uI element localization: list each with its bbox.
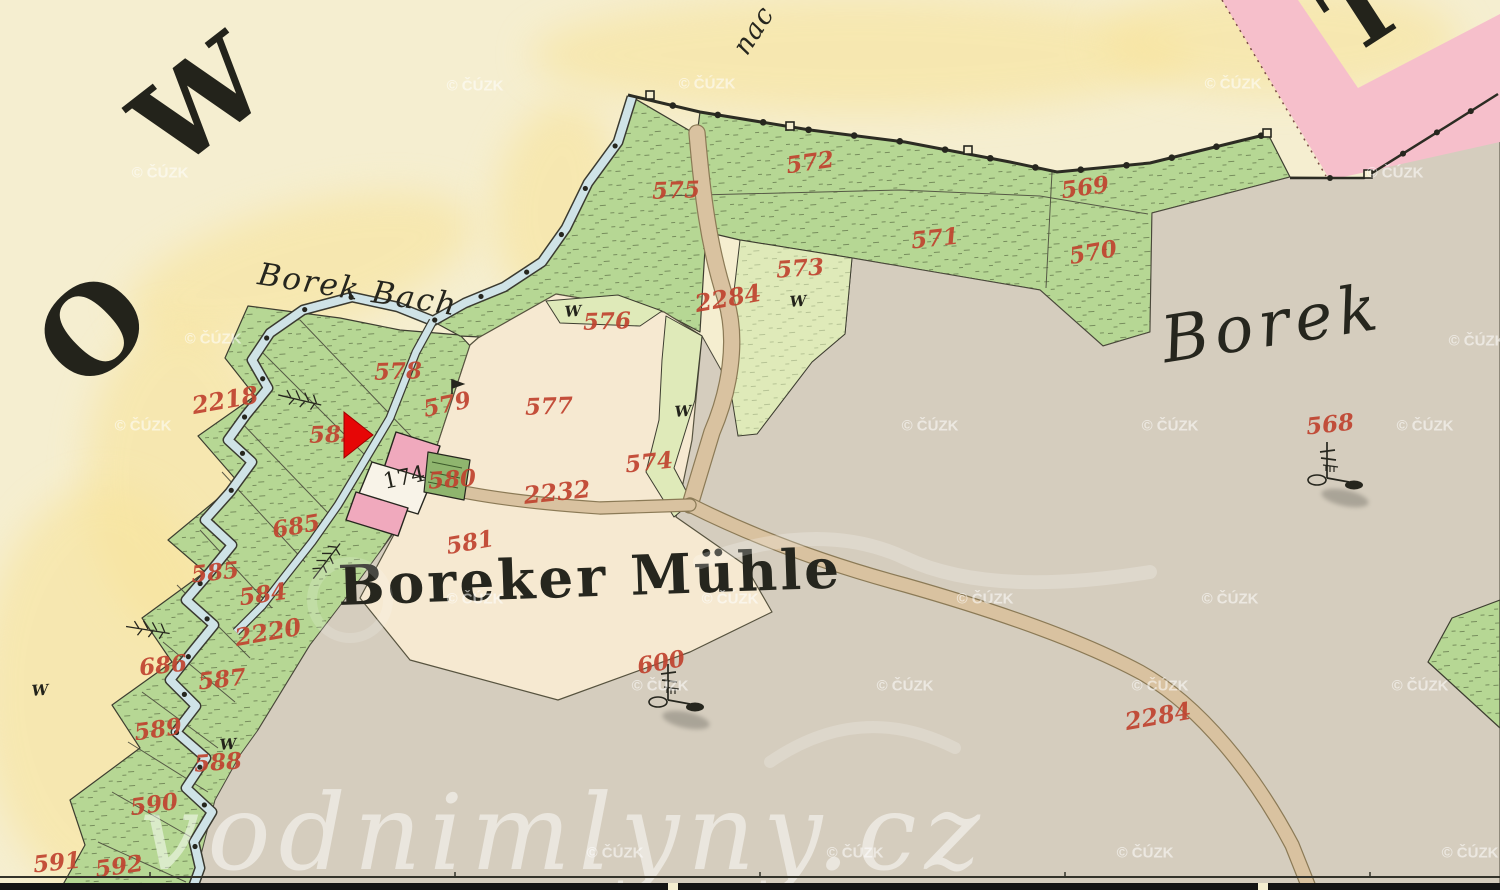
map-viewer: OWTBorek BachnacBoreker MühleBorek174221…: [0, 0, 1500, 890]
cuzk-watermark: © ČÚZK: [1132, 676, 1189, 694]
cuzk-watermark: © ČÚZK: [1117, 843, 1174, 861]
cuzk-watermark: © ČÚZK: [1367, 163, 1424, 181]
cuzk-watermark: © ČÚZK: [447, 76, 504, 94]
cuzk-watermark: © ČÚZK: [1397, 416, 1454, 434]
cuzk-watermark: © ČÚZK: [827, 843, 884, 861]
cuzk-watermark: © ČÚZK: [1142, 416, 1199, 434]
cuzk-watermark: © ČÚZK: [1205, 74, 1262, 92]
site-watermark-text: vodnimlyny.cz: [140, 772, 988, 890]
cuzk-watermark: © ČÚZK: [132, 163, 189, 181]
cuzk-watermark: © ČÚZK: [1449, 331, 1500, 349]
parcel-number: 568: [1305, 409, 1356, 441]
cuzk-watermark: © ČÚZK: [957, 589, 1014, 607]
cuzk-watermark: © ČÚZK: [1202, 589, 1259, 607]
parcel-number: 575: [652, 176, 701, 205]
cuzk-watermark: © ČÚZK: [1442, 843, 1499, 861]
cuzk-watermark: © ČÚZK: [632, 676, 689, 694]
parcel-number: 585: [190, 557, 241, 589]
parcel-number: 591: [32, 847, 83, 879]
cuzk-watermark: © ČÚZK: [447, 589, 504, 607]
map-canvas[interactable]: OWTBorek BachnacBoreker MühleBorek174221…: [0, 0, 1500, 890]
cuzk-watermark: © ČÚZK: [877, 676, 934, 694]
parcel-number: 686: [138, 650, 189, 682]
parcel-number: 580: [427, 464, 477, 494]
cuzk-watermark: © ČÚZK: [115, 416, 172, 434]
cuzk-watermark: © ČÚZK: [1392, 676, 1449, 694]
parcel-number: 587: [197, 664, 248, 696]
parcel-number: 571: [910, 223, 961, 255]
cuzk-watermark: © ČÚZK: [902, 416, 959, 434]
cuzk-watermark: © ČÚZK: [587, 843, 644, 861]
parcel-number: 578: [374, 357, 423, 386]
cuzk-watermark: © ČÚZK: [185, 329, 242, 347]
parcel-number: 577: [525, 392, 574, 421]
parcel-number: 573: [775, 253, 825, 283]
cuzk-watermark: © ČÚZK: [679, 74, 736, 92]
parcel-number: 576: [583, 307, 632, 336]
cuzk-watermark: © ČÚZK: [702, 589, 759, 607]
parcel-number: 574: [624, 447, 675, 479]
